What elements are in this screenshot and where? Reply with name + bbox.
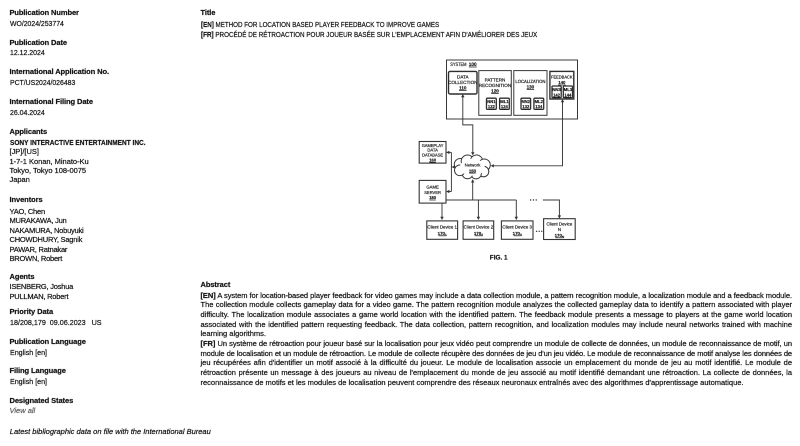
svg-text:PATTERN: PATTERN xyxy=(485,77,506,82)
svg-text:142: 142 xyxy=(553,92,561,97)
svg-text:FEEDBACK: FEEDBACK xyxy=(551,74,573,79)
svg-text:SERVER: SERVER xyxy=(424,190,441,195)
svg-text:124: 124 xyxy=(501,104,509,109)
svg-text:180: 180 xyxy=(429,195,437,200)
svg-text:SYSTEM: SYSTEM xyxy=(450,62,466,68)
svg-text:N: N xyxy=(558,227,561,232)
svg-text:Client Device 2: Client Device 2 xyxy=(464,224,494,229)
svg-text:132: 132 xyxy=(522,104,530,109)
svg-text:ML3: ML3 xyxy=(564,87,573,92)
svg-text:Client Device 1: Client Device 1 xyxy=(427,224,457,229)
svg-text:130: 130 xyxy=(527,84,535,89)
svg-text:NN3: NN3 xyxy=(552,87,561,92)
svg-text:RECOGNITION: RECOGNITION xyxy=(479,83,511,88)
svg-text:120: 120 xyxy=(491,89,499,94)
svg-text:Client Device: Client Device xyxy=(546,222,572,227)
svg-text:144: 144 xyxy=(564,92,572,97)
svg-text:160: 160 xyxy=(429,158,437,163)
svg-text:FIG. 1: FIG. 1 xyxy=(490,254,508,261)
svg-text:LOCALIZATION: LOCALIZATION xyxy=(515,79,545,84)
svg-text:DATA: DATA xyxy=(457,74,470,79)
svg-text:Network: Network xyxy=(465,163,482,168)
svg-text:Client Device 3: Client Device 3 xyxy=(502,224,532,229)
svg-text:COLLECTION: COLLECTION xyxy=(448,80,477,85)
svg-text:110: 110 xyxy=(459,86,467,91)
svg-text:140: 140 xyxy=(558,80,566,85)
svg-text:134: 134 xyxy=(535,104,543,109)
svg-text:122: 122 xyxy=(488,104,496,109)
svg-text:GAME: GAME xyxy=(426,185,439,190)
svg-text:150: 150 xyxy=(469,168,477,173)
